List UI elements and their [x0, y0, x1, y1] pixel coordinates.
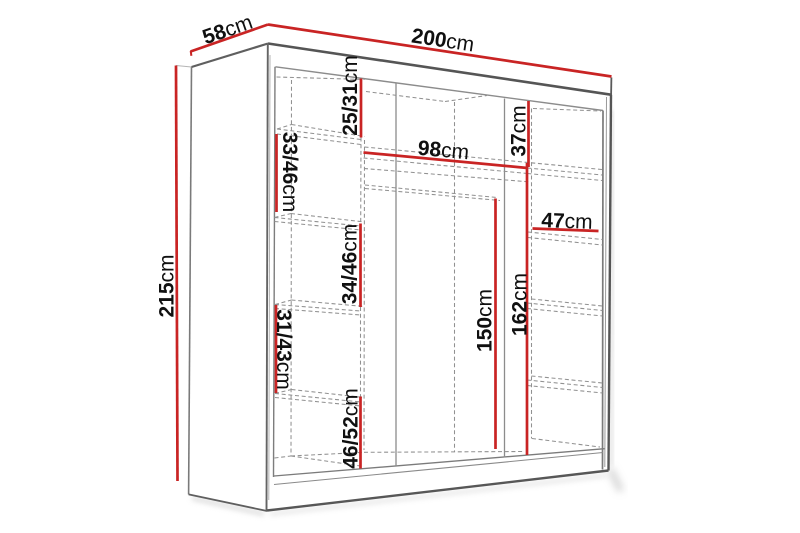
svg-text:215cm: 215cm: [155, 254, 178, 317]
svg-text:31/43cm: 31/43cm: [273, 309, 296, 390]
svg-text:25/31cm: 25/31cm: [339, 55, 362, 136]
svg-text:34/46cm: 34/46cm: [338, 224, 361, 305]
svg-text:162cm: 162cm: [508, 273, 531, 336]
svg-text:58cm: 58cm: [199, 10, 255, 49]
svg-text:150cm: 150cm: [473, 289, 496, 352]
svg-text:98cm: 98cm: [417, 136, 470, 164]
svg-text:37cm: 37cm: [507, 105, 530, 156]
svg-text:33/46cm: 33/46cm: [279, 132, 302, 213]
svg-text:47cm: 47cm: [541, 209, 593, 234]
svg-text:200cm: 200cm: [410, 24, 476, 56]
svg-text:46/52cm: 46/52cm: [339, 388, 362, 469]
